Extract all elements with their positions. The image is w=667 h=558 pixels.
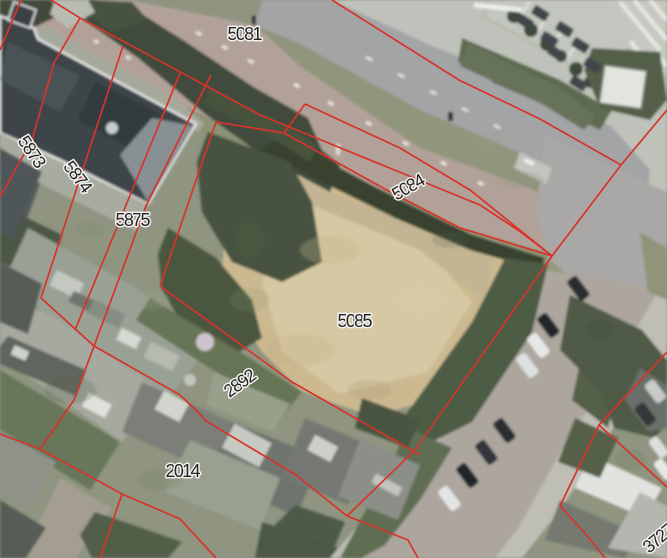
svg-text:5085: 5085: [338, 311, 373, 331]
svg-text:5081: 5081: [228, 24, 263, 44]
svg-text:5875: 5875: [116, 210, 151, 230]
svg-text:2014: 2014: [166, 461, 201, 481]
